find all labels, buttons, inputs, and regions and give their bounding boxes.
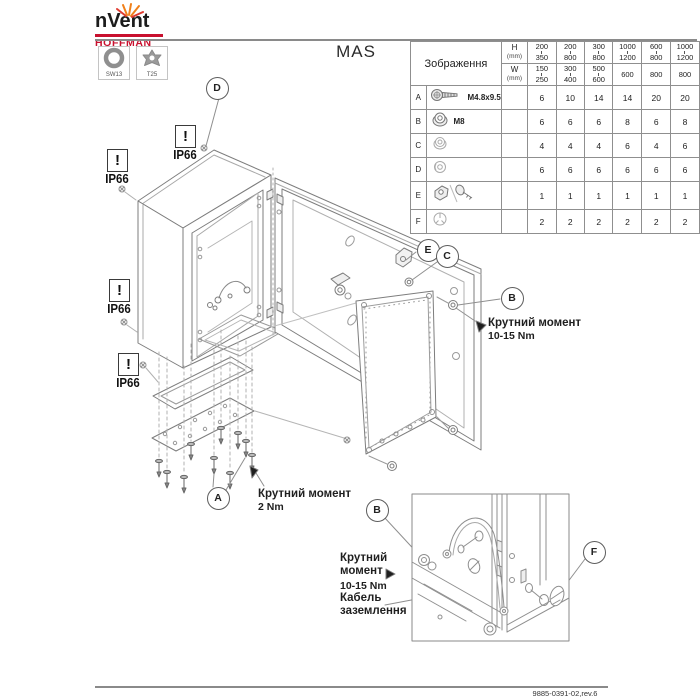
ip66-label: IP66 xyxy=(167,147,202,162)
torque-note-inset: Крутний момент 10-15 Nm xyxy=(340,552,387,593)
torque-value: 10-15 Nm xyxy=(488,330,581,343)
instruction-sheet: nVent HOFFMAN SW13 T25 MAS ЗображенняH(m… xyxy=(0,0,700,700)
torque-value: 2 Nm xyxy=(258,501,351,514)
enclosure-body xyxy=(138,150,283,368)
ground-cable-note: Кабель заземлення xyxy=(340,592,407,618)
ip66-label: IP66 xyxy=(110,375,145,390)
warning-exclamation-box: ! xyxy=(107,149,128,172)
torque-text: момент xyxy=(340,565,387,578)
torque-note-lower: Крутний момент 2 Nm xyxy=(258,488,351,514)
plate-corner-screw xyxy=(344,437,350,443)
torque-text: Крутний момент xyxy=(258,488,351,501)
callout-c-2: C xyxy=(436,245,459,268)
warning-exclamation-box: ! xyxy=(175,125,196,148)
callout-b-5: B xyxy=(366,499,389,522)
document-number: 9885-0391-02,rev.6 xyxy=(495,689,635,698)
exclamation-icon: ! xyxy=(126,356,131,373)
callout-a-4: A xyxy=(207,487,230,510)
torque-text: Крутний момент xyxy=(488,317,581,330)
torque-lower-arrow xyxy=(250,466,258,478)
exclamation-icon: ! xyxy=(115,152,120,169)
warning-exclamation-box: ! xyxy=(109,279,130,302)
detail-inset xyxy=(412,494,569,641)
exclamation-icon: ! xyxy=(117,282,122,299)
inset-torque-arrow xyxy=(386,569,395,579)
ground-text: Кабель xyxy=(340,592,407,605)
ground-text: заземлення xyxy=(340,605,407,618)
warning-exclamation-box: ! xyxy=(118,353,139,376)
gland-gasket xyxy=(153,357,253,409)
ip66-label: IP66 xyxy=(99,171,134,186)
ip66-label: IP66 xyxy=(101,301,136,316)
torque-text: Крутний xyxy=(340,552,387,565)
torque-note-upper: Крутний момент 10-15 Nm xyxy=(488,317,581,343)
callout-f-6: F xyxy=(583,541,606,564)
callout-d-0: D xyxy=(206,77,229,100)
nut-part xyxy=(405,278,413,286)
exclamation-icon: ! xyxy=(183,128,188,145)
callout-b-3: B xyxy=(501,287,524,310)
footer-rule xyxy=(95,686,608,688)
